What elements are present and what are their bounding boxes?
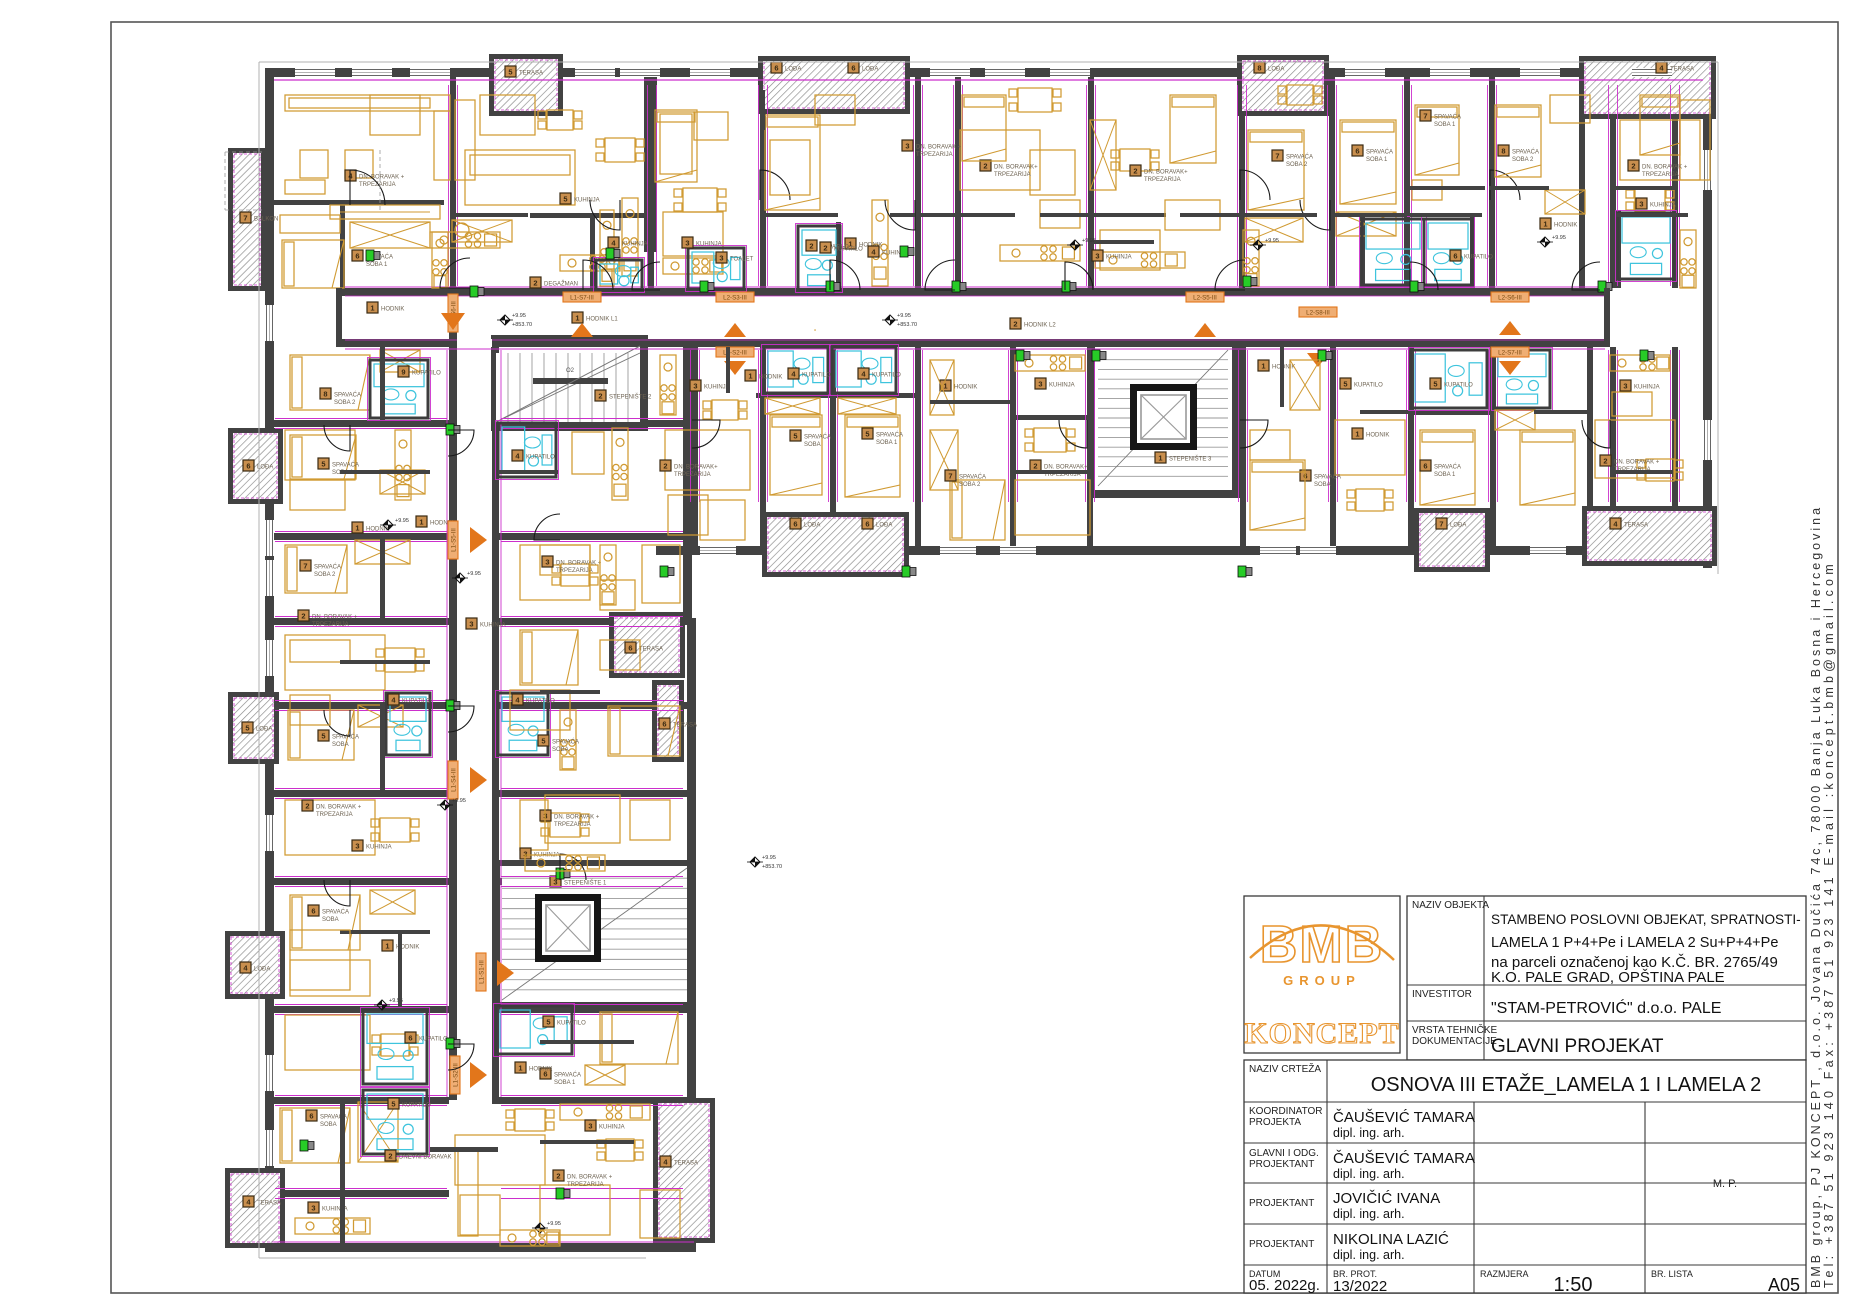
svg-text:KUPATILO: KUPATILO <box>1464 255 1493 261</box>
svg-text:DN. BORAVAK +: DN. BORAVAK + <box>1614 460 1660 466</box>
svg-text:HODNIK: HODNIK <box>954 385 977 391</box>
svg-text:SPAVAĆA: SPAVAĆA <box>332 462 359 469</box>
svg-text:1: 1 <box>748 372 752 381</box>
svg-text:LOĐA: LOĐA <box>862 67 878 73</box>
svg-text:SOBA 1: SOBA 1 <box>1434 122 1456 128</box>
svg-text:KUHINJA: KUHINJA <box>1634 385 1660 391</box>
svg-text:DN. BORAVAK+: DN. BORAVAK+ <box>674 465 718 471</box>
svg-text:+9.95: +9.95 <box>512 313 526 319</box>
svg-text:9: 9 <box>401 368 405 377</box>
svg-text:NAZIV OBJEKTA: NAZIV OBJEKTA <box>1412 900 1489 911</box>
svg-text:SOBA: SOBA <box>1314 482 1331 488</box>
svg-text:6: 6 <box>1423 462 1427 471</box>
svg-text:STEPENIŠTE 2: STEPENIŠTE 2 <box>609 394 652 401</box>
svg-text:BR. LISTA: BR. LISTA <box>1651 1269 1693 1279</box>
svg-text:2: 2 <box>1603 457 1607 466</box>
svg-text:DN. BORAVAK+: DN. BORAVAK+ <box>1144 170 1188 176</box>
svg-text:3: 3 <box>1639 200 1643 209</box>
svg-text:LOĐA: LOĐA <box>1450 523 1466 529</box>
svg-text:+853.70: +853.70 <box>762 864 782 870</box>
svg-text:2: 2 <box>301 612 305 621</box>
svg-text:LOĐA: LOĐA <box>1268 67 1284 73</box>
svg-text:KUPATILO: KUPATILO <box>402 699 431 705</box>
svg-text:HODNIK L2: HODNIK L2 <box>1024 323 1056 329</box>
svg-text:DN. BORAVAK +: DN. BORAVAK + <box>316 805 362 811</box>
svg-text:KUPATILO: KUPATILO <box>419 1037 448 1043</box>
svg-text:DN. BORAVAK+: DN. BORAVAK+ <box>994 165 1038 171</box>
svg-text:NAZIV CRTEŽA: NAZIV CRTEŽA <box>1249 1062 1321 1075</box>
svg-text:TERASA: TERASA <box>257 1201 281 1207</box>
svg-text:7: 7 <box>303 562 307 571</box>
svg-text:TRPEZARIJA: TRPEZARIJA <box>556 568 593 574</box>
svg-text:HODNIK: HODNIK <box>759 375 782 381</box>
svg-text:SOBA 2: SOBA 2 <box>1512 157 1534 163</box>
svg-text:5: 5 <box>391 1100 395 1109</box>
svg-text:DN. BORAVAK +: DN. BORAVAK + <box>554 815 600 821</box>
svg-text:JOVIČIĆ IVANA: JOVIČIĆ IVANA <box>1333 1190 1440 1207</box>
svg-text:1: 1 <box>1543 220 1547 229</box>
svg-text:KUHINJA: KUHINJA <box>366 845 392 851</box>
svg-text:GLAVNI PROJEKAT: GLAVNI PROJEKAT <box>1491 1036 1664 1057</box>
svg-text:SOBA: SOBA <box>804 442 821 448</box>
svg-text:3: 3 <box>719 254 723 263</box>
svg-text:2: 2 <box>1133 167 1137 176</box>
svg-text:SOBA 2: SOBA 2 <box>959 482 981 488</box>
svg-text:5: 5 <box>508 68 512 77</box>
svg-text:BMB group, PJ KONCEPT , d.o.o.: BMB group, PJ KONCEPT , d.o.o. Jovana Du… <box>1809 505 1823 1288</box>
svg-text:SPAVAĆA: SPAVAĆA <box>1314 474 1341 481</box>
svg-text:KUHINJA: KUHINJA <box>622 242 648 248</box>
svg-text:6: 6 <box>311 907 315 916</box>
svg-text:6: 6 <box>865 520 869 529</box>
svg-text:Tel: +387 51 923 140 Fax: +387: Tel: +387 51 923 140 Fax: +387 51 923 14… <box>1822 560 1836 1288</box>
svg-text:+853.70: +853.70 <box>897 322 917 328</box>
svg-text:SPAVAĆA: SPAVAĆA <box>554 1072 581 1079</box>
svg-text:KUPATILO: KUPATILO <box>557 1021 586 1027</box>
svg-text:SOBA 1: SOBA 1 <box>554 1080 576 1086</box>
svg-text:LOĐA: LOĐA <box>256 727 272 733</box>
svg-text:SPAVAĆA: SPAVAĆA <box>314 564 341 571</box>
svg-text:2: 2 <box>1631 162 1635 171</box>
svg-text:+853.70: +853.70 <box>512 322 532 328</box>
svg-text:DN. BORAVAK +: DN. BORAVAK + <box>567 1175 613 1181</box>
svg-text:+9.95: +9.95 <box>897 313 911 319</box>
svg-text:SPAVAĆA: SPAVAĆA <box>1366 149 1393 156</box>
svg-text:5: 5 <box>1433 380 1437 389</box>
svg-text:L2-S8-III: L2-S8-III <box>1306 310 1330 317</box>
svg-text:2: 2 <box>823 244 827 253</box>
svg-text:DN. BORAVAK +: DN. BORAVAK + <box>916 145 962 151</box>
svg-text:KUHINJA: KUHINJA <box>599 1125 625 1131</box>
svg-text:SOBA 1: SOBA 1 <box>366 262 388 268</box>
svg-text:+9.95: +9.95 <box>547 1221 561 1227</box>
svg-text:dipl. ing. arh.: dipl. ing. arh. <box>1333 1126 1405 1140</box>
svg-text:KUPATILO: KUPATILO <box>526 699 555 705</box>
svg-text:3: 3 <box>1095 252 1099 261</box>
svg-text:SPAVAĆA: SPAVAĆA <box>876 432 903 439</box>
svg-text:3: 3 <box>311 1204 315 1213</box>
svg-text:7: 7 <box>948 472 952 481</box>
svg-text:1: 1 <box>518 1064 522 1073</box>
svg-text:3: 3 <box>685 239 689 248</box>
svg-text:HODNIK: HODNIK <box>529 1067 552 1073</box>
svg-text:3: 3 <box>693 382 697 391</box>
svg-text:3: 3 <box>469 620 473 629</box>
svg-text:OSNOVA III ETAŽE_LAMELA 1 I LA: OSNOVA III ETAŽE_LAMELA 1 I LAMELA 2 <box>1371 1073 1762 1096</box>
svg-text:TERASA: TERASA <box>673 723 697 729</box>
svg-text:DEGAŽMAN: DEGAŽMAN <box>544 280 578 288</box>
svg-text:L1-S7-III: L1-S7-III <box>570 295 594 302</box>
svg-text:5: 5 <box>546 1018 550 1027</box>
svg-text:TRPEZARIJA: TRPEZARIJA <box>567 1182 604 1188</box>
svg-text:3: 3 <box>1623 382 1627 391</box>
svg-text:SPAVAĆA: SPAVAĆA <box>1512 149 1539 156</box>
svg-text:TRPEZARIJA: TRPEZARIJA <box>674 472 711 478</box>
svg-text:DN. BORAVAK +: DN. BORAVAK + <box>359 175 405 181</box>
svg-text:KUHINJA: KUHINJA <box>704 385 730 391</box>
svg-text:2: 2 <box>556 1172 560 1181</box>
svg-text:3: 3 <box>588 1122 592 1131</box>
svg-text:6: 6 <box>774 64 778 73</box>
svg-text:TOALET: TOALET <box>730 257 754 263</box>
svg-text:KUPATILO: KUPATILO <box>802 373 831 379</box>
svg-text:7: 7 <box>1423 112 1427 121</box>
svg-text:TRPEZARIJA: TRPEZARIJA <box>316 812 353 818</box>
svg-text:6: 6 <box>408 1034 412 1043</box>
svg-text:KUPATILO: KUPATILO <box>526 455 555 461</box>
svg-text:SOBA 1: SOBA 1 <box>1434 472 1456 478</box>
svg-text:TRPEZARIJA: TRPEZARIJA <box>994 172 1031 178</box>
svg-text:dipl. ing. arh.: dipl. ing. arh. <box>1333 1248 1405 1262</box>
svg-text:SOBA 2: SOBA 2 <box>334 400 356 406</box>
svg-text:KOORDINATOR: KOORDINATOR <box>1249 1106 1323 1117</box>
svg-text:6: 6 <box>628 644 632 653</box>
svg-text:SPAVAĆA: SPAVAĆA <box>1434 114 1461 121</box>
svg-text:L1-S1-III: L1-S1-III <box>479 960 486 984</box>
svg-text:RAZMJERA: RAZMJERA <box>1480 1269 1529 1279</box>
svg-text:KUPATILO: KUPATILO <box>412 371 441 377</box>
svg-text:5: 5 <box>1343 380 1347 389</box>
svg-text:dipl. ing. arh.: dipl. ing. arh. <box>1333 1167 1405 1181</box>
svg-text:SOBA 2: SOBA 2 <box>314 572 336 578</box>
svg-text:DOKUMENTACIJE: DOKUMENTACIJE <box>1412 1036 1497 1047</box>
svg-text:SPAVAĆA: SPAVAĆA <box>1434 464 1461 471</box>
svg-text:LAMELA 1 P+4+Pe i LAMELA 2 Su+: LAMELA 1 P+4+Pe i LAMELA 2 Su+P+4+Pe <box>1491 935 1778 951</box>
svg-text:ČAUŠEVIĆ TAMARA: ČAUŠEVIĆ TAMARA <box>1333 1150 1475 1167</box>
svg-text:5: 5 <box>793 432 797 441</box>
svg-text:3: 3 <box>905 142 909 151</box>
svg-text:LOĐA: LOĐA <box>785 67 801 73</box>
svg-text:O2: O2 <box>566 368 575 374</box>
svg-text:1: 1 <box>419 518 423 527</box>
svg-text:6: 6 <box>355 252 359 261</box>
svg-text:TRPEZARIJA: TRPEZARIJA <box>554 822 591 828</box>
svg-text:LOĐA: LOĐA <box>876 523 892 529</box>
svg-text:6: 6 <box>1453 252 1457 261</box>
svg-text:PROJEKTANT: PROJEKTANT <box>1249 1198 1314 1209</box>
svg-text:HODNIK: HODNIK <box>1366 433 1389 439</box>
svg-text:HODNIK: HODNIK <box>1554 223 1577 229</box>
svg-text:SOBA: SOBA <box>552 747 569 753</box>
svg-text:INVESTITOR: INVESTITOR <box>1412 989 1472 1000</box>
svg-text:PROJEKTANT: PROJEKTANT <box>1249 1239 1314 1250</box>
svg-text:SOBA 1: SOBA 1 <box>876 440 898 446</box>
svg-text:2: 2 <box>1033 462 1037 471</box>
svg-text:SOBA: SOBA <box>332 742 349 748</box>
svg-text:LOĐA: LOĐA <box>254 967 270 973</box>
svg-text:+9.95: +9.95 <box>395 518 409 524</box>
svg-text:dipl. ing. arh.: dipl. ing. arh. <box>1333 1207 1405 1221</box>
svg-text:A05: A05 <box>1768 1275 1800 1295</box>
svg-text:+9.95: +9.95 <box>467 571 481 577</box>
svg-text:L2-S5-III: L2-S5-III <box>1193 295 1217 302</box>
svg-text:KUHINJA: KUHINJA <box>1106 255 1132 261</box>
svg-text:TRPEZARIJA: TRPEZARIJA <box>1144 177 1181 183</box>
svg-text:7: 7 <box>243 214 247 223</box>
svg-text:7: 7 <box>1439 520 1443 529</box>
svg-text:3: 3 <box>355 842 359 851</box>
svg-text:8: 8 <box>323 390 327 399</box>
svg-text:5: 5 <box>245 724 249 733</box>
svg-text:1: 1 <box>355 524 359 533</box>
svg-text:VRSTA TEHNIČKE: VRSTA TEHNIČKE <box>1412 1023 1498 1036</box>
svg-text:SPAVAĆA: SPAVAĆA <box>804 434 831 441</box>
svg-text:SPAVAĆA: SPAVAĆA <box>322 909 349 916</box>
svg-text:L1-S2-III: L1-S2-III <box>453 1063 460 1087</box>
svg-text:TERASA: TERASA <box>1670 67 1694 73</box>
svg-text:5: 5 <box>321 460 325 469</box>
svg-text:8: 8 <box>1501 147 1505 156</box>
svg-text:KUHINJA: KUHINJA <box>480 623 506 629</box>
svg-text:KUHINJA: KUHINJA <box>696 242 722 248</box>
svg-text:STEPENIŠTE 1: STEPENIŠTE 1 <box>564 880 607 887</box>
svg-text:SOBA: SOBA <box>320 1122 337 1128</box>
svg-text:3: 3 <box>1038 380 1042 389</box>
svg-text:L2-S7-III: L2-S7-III <box>1498 350 1522 357</box>
svg-text:BALKON: BALKON <box>254 217 278 223</box>
svg-text:TERASA: TERASA <box>519 71 543 77</box>
svg-text:GROUP: GROUP <box>1283 973 1361 988</box>
svg-text:SPAVAĆA: SPAVAĆA <box>334 392 361 399</box>
svg-text:5: 5 <box>541 737 545 746</box>
svg-text:2: 2 <box>809 242 813 251</box>
svg-text:SPAVAĆA: SPAVAĆA <box>1286 154 1313 161</box>
svg-text:TRPEZARIJA: TRPEZARIJA <box>312 622 349 628</box>
svg-text:DN. BORAVAK +: DN. BORAVAK + <box>1642 165 1688 171</box>
svg-text:7: 7 <box>1275 152 1279 161</box>
svg-text:3: 3 <box>545 558 549 567</box>
svg-text:KUHINJA: KUHINJA <box>574 198 600 204</box>
svg-text:1:50: 1:50 <box>1554 1274 1593 1296</box>
svg-text:1: 1 <box>385 942 389 951</box>
svg-text:K.O. PALE GRAD, OPŠTINA PALE: K.O. PALE GRAD, OPŠTINA PALE <box>1491 969 1725 986</box>
svg-text:PROJEKTA: PROJEKTA <box>1249 1117 1301 1128</box>
svg-text:8: 8 <box>1257 64 1261 73</box>
svg-text:PROJEKTANT: PROJEKTANT <box>1249 1159 1314 1170</box>
svg-text:TERASA: TERASA <box>1624 523 1648 529</box>
svg-text:KUPATILO: KUPATILO <box>872 373 901 379</box>
svg-text:1: 1 <box>1355 430 1359 439</box>
svg-text:5: 5 <box>563 195 567 204</box>
svg-text:HODNIK L1: HODNIK L1 <box>586 317 618 323</box>
svg-text:KUPATILO: KUPATILO <box>1354 383 1383 389</box>
svg-text:M. P.: M. P. <box>1713 1178 1737 1190</box>
svg-text:TRPEZARIJA: TRPEZARIJA <box>916 152 953 158</box>
svg-text:KUPATILO: KUPATILO <box>834 247 863 253</box>
svg-text:STAMBENO POSLOVNI OBJEKAT, SPR: STAMBENO POSLOVNI OBJEKAT, SPRATNOSTI- <box>1491 912 1801 927</box>
svg-text:GLAVNI I ODG.: GLAVNI I ODG. <box>1249 1148 1319 1159</box>
svg-text:5: 5 <box>865 430 869 439</box>
svg-text:LOĐA: LOĐA <box>804 523 820 529</box>
svg-text:TERASA: TERASA <box>639 647 663 653</box>
svg-text:2: 2 <box>533 279 537 288</box>
svg-text:STEPENIŠTE 3: STEPENIŠTE 3 <box>1169 456 1212 463</box>
svg-text:HODNIK: HODNIK <box>381 307 404 313</box>
svg-text:2: 2 <box>1013 320 1017 329</box>
svg-text:2: 2 <box>663 462 667 471</box>
svg-text:L2-S6-III: L2-S6-III <box>1498 295 1522 302</box>
svg-text:SOBA 2: SOBA 2 <box>1286 162 1308 168</box>
svg-text:6: 6 <box>1355 147 1359 156</box>
svg-text:DN. BORAVAK +: DN. BORAVAK + <box>556 561 602 567</box>
svg-text:L2-S3-III: L2-S3-III <box>723 295 747 302</box>
svg-text:13/2022: 13/2022 <box>1333 1278 1387 1295</box>
svg-text:6: 6 <box>662 720 666 729</box>
svg-text:2: 2 <box>983 162 987 171</box>
svg-text:KUHINJA: KUHINJA <box>1049 383 1075 389</box>
svg-text:"STAM-PETROVIĆ" d.o.o. PALE: "STAM-PETROVIĆ" d.o.o. PALE <box>1491 998 1721 1017</box>
svg-text:SOBA 1: SOBA 1 <box>1366 157 1388 163</box>
svg-text:6: 6 <box>793 520 797 529</box>
svg-text:1: 1 <box>1261 362 1265 371</box>
svg-text:1: 1 <box>575 314 579 323</box>
svg-text:SPAVAĆA: SPAVAĆA <box>332 734 359 741</box>
svg-text:L1-S5-III: L1-S5-III <box>451 528 458 552</box>
svg-text:05. 2022g.: 05. 2022g. <box>1249 1277 1320 1294</box>
svg-text:SOBA: SOBA <box>322 917 339 923</box>
svg-text:+9.95: +9.95 <box>1265 238 1279 244</box>
svg-text:+9.95: +9.95 <box>1552 235 1566 241</box>
svg-text:KUHINJA: KUHINJA <box>1650 203 1676 209</box>
svg-text:L1-S4-III: L1-S4-III <box>451 768 458 792</box>
svg-text:5: 5 <box>321 732 325 741</box>
svg-text:6: 6 <box>246 462 250 471</box>
svg-text:DNEVNI BORAVAK: DNEVNI BORAVAK <box>399 1155 451 1161</box>
svg-text:+9.95: +9.95 <box>1082 238 1096 244</box>
svg-text:KONCEPT: KONCEPT <box>1244 1017 1399 1050</box>
svg-text:2: 2 <box>598 392 602 401</box>
svg-text:KUPATILO: KUPATILO <box>402 1103 431 1109</box>
svg-text:SPAVAĆA: SPAVAĆA <box>959 474 986 481</box>
svg-text:DN. BORAVAK +: DN. BORAVAK + <box>312 615 358 621</box>
svg-text:+9.95: +9.95 <box>762 855 776 861</box>
svg-text:6: 6 <box>309 1112 313 1121</box>
svg-text:DN. BORAVAK+: DN. BORAVAK+ <box>1044 465 1088 471</box>
svg-text:TERASA: TERASA <box>674 1161 698 1167</box>
svg-text:TRPEZARIJA: TRPEZARIJA <box>1642 172 1679 178</box>
svg-text:+9.95: +9.95 <box>452 798 466 804</box>
svg-text:KUPATILO: KUPATILO <box>1444 383 1473 389</box>
svg-text:SPAVAĆA: SPAVAĆA <box>552 739 579 746</box>
svg-text:ČAUŠEVIĆ TAMARA: ČAUŠEVIĆ TAMARA <box>1333 1109 1475 1126</box>
svg-text:1: 1 <box>370 304 374 313</box>
svg-text:2: 2 <box>388 1152 392 1161</box>
svg-text:2: 2 <box>305 802 309 811</box>
svg-text:6: 6 <box>851 64 855 73</box>
svg-text:NIKOLINA LAZIĆ: NIKOLINA LAZIĆ <box>1333 1231 1449 1248</box>
svg-text:1: 1 <box>1158 454 1162 463</box>
